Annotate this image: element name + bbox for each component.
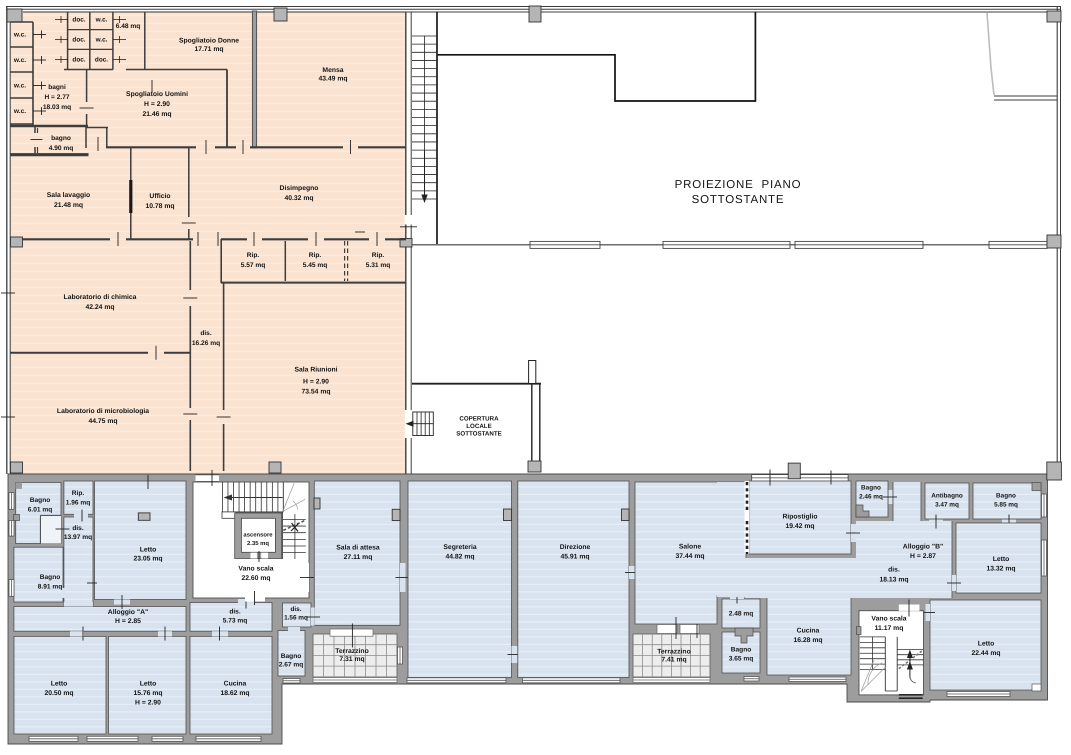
svg-text:H = 2.90: H = 2.90 — [303, 379, 329, 386]
svg-text:Cucina: Cucina — [797, 628, 820, 635]
svg-text:11.17 mq: 11.17 mq — [875, 625, 904, 632]
svg-text:7.31 mq: 7.31 mq — [339, 656, 364, 663]
svg-text:22.60 mq: 22.60 mq — [241, 575, 270, 582]
svg-text:dis.: dis. — [888, 567, 900, 574]
svg-text:7.41 mq: 7.41 mq — [661, 657, 686, 664]
svg-text:2.67 mq: 2.67 mq — [279, 662, 304, 669]
svg-text:H = 2.77: H = 2.77 — [44, 94, 69, 101]
svg-text:SOTTOSTANTE: SOTTOSTANTE — [692, 194, 785, 206]
svg-text:w.c.: w.c. — [13, 83, 26, 90]
svg-text:16.28 mq: 16.28 mq — [793, 637, 822, 644]
svg-text:Sala lavaggio: Sala lavaggio — [47, 192, 90, 199]
svg-text:Sala Riunioni: Sala Riunioni — [294, 367, 337, 374]
svg-text:42.24 mq: 42.24 mq — [85, 304, 114, 311]
svg-text:Bagno: Bagno — [996, 493, 1016, 500]
svg-text:27.11 mq: 27.11 mq — [344, 554, 373, 561]
svg-text:H = 2.85: H = 2.85 — [115, 618, 141, 625]
svg-text:Alloggio "B": Alloggio "B" — [903, 544, 943, 551]
svg-text:Laboratorio di microbiologia: Laboratorio di microbiologia — [57, 408, 149, 415]
svg-text:43.49 mq: 43.49 mq — [318, 76, 347, 83]
svg-text:COPERTURA: COPERTURA — [459, 416, 499, 423]
svg-text:19.42 mq: 19.42 mq — [785, 523, 814, 530]
svg-text:bagno: bagno — [51, 135, 71, 142]
svg-text:doc.: doc. — [72, 37, 85, 44]
svg-text:40.32 mq: 40.32 mq — [284, 195, 313, 202]
svg-text:13.97 mq: 13.97 mq — [64, 534, 92, 541]
svg-text:1.56 mq: 1.56 mq — [284, 615, 308, 622]
svg-text:H = 2.90: H = 2.90 — [144, 101, 170, 108]
svg-text:ascensore: ascensore — [243, 533, 273, 539]
svg-text:w.c.: w.c. — [13, 57, 26, 64]
svg-text:Ufficio: Ufficio — [149, 193, 170, 200]
svg-text:15.76 mq: 15.76 mq — [133, 690, 162, 697]
svg-text:18.62 mq: 18.62 mq — [220, 690, 249, 697]
svg-text:Laboratorio di chimica: Laboratorio di chimica — [64, 294, 137, 301]
svg-text:Segreteria: Segreteria — [443, 544, 476, 551]
svg-text:21.48 mq: 21.48 mq — [54, 202, 83, 209]
svg-text:Rip.: Rip. — [247, 252, 260, 259]
svg-text:3.65 mq: 3.65 mq — [729, 656, 754, 663]
svg-text:Mensa: Mensa — [322, 67, 343, 74]
svg-text:2.35 mq: 2.35 mq — [247, 540, 269, 547]
svg-text:w.c.: w.c. — [13, 32, 26, 39]
svg-text:8.91 mq: 8.91 mq — [38, 584, 63, 591]
svg-text:dis.: dis. — [290, 606, 301, 613]
svg-text:doc.: doc. — [95, 57, 108, 64]
svg-text:Bagno: Bagno — [40, 574, 61, 581]
svg-text:45.91 mq: 45.91 mq — [560, 554, 589, 561]
svg-text:4.90 mq: 4.90 mq — [49, 145, 74, 152]
svg-text:dis.: dis. — [229, 609, 241, 616]
svg-text:Spogliatoio Uomini: Spogliatoio Uomini — [126, 91, 188, 98]
svg-text:Spogliatoio Donne: Spogliatoio Donne — [179, 38, 239, 45]
svg-text:18.13 mq: 18.13 mq — [879, 577, 908, 584]
svg-text:LOCALE: LOCALE — [466, 423, 491, 430]
svg-text:6.01 mq: 6.01 mq — [28, 507, 53, 514]
svg-text:dis.: dis. — [72, 525, 84, 532]
svg-text:18.03 mq: 18.03 mq — [43, 104, 71, 111]
svg-text:Rip.: Rip. — [372, 252, 385, 259]
svg-text:22.44 mq: 22.44 mq — [971, 650, 1000, 657]
svg-text:Alloggio "A": Alloggio "A" — [108, 609, 148, 616]
svg-text:Bagno: Bagno — [861, 485, 881, 492]
svg-text:Cucina: Cucina — [224, 681, 247, 688]
svg-text:Letto: Letto — [140, 681, 157, 688]
svg-text:5.31 mq: 5.31 mq — [366, 262, 391, 269]
svg-text:Rip.: Rip. — [72, 490, 85, 497]
svg-text:5.45 mq: 5.45 mq — [303, 262, 328, 269]
svg-text:5.85 mq: 5.85 mq — [994, 502, 1018, 509]
svg-text:2.46 mq: 2.46 mq — [859, 494, 883, 501]
svg-text:6.48 mq: 6.48 mq — [116, 23, 141, 30]
svg-text:Vano scala: Vano scala — [871, 616, 906, 623]
svg-text:Direzione: Direzione — [560, 544, 591, 551]
svg-text:Terrazzino: Terrazzino — [657, 649, 691, 656]
svg-text:Letto: Letto — [978, 641, 995, 648]
svg-text:2.48 mq: 2.48 mq — [729, 611, 754, 618]
svg-text:Letto: Letto — [140, 547, 157, 554]
svg-text:13.32 mq: 13.32 mq — [986, 566, 1015, 573]
svg-text:Terrazzino: Terrazzino — [335, 648, 369, 655]
svg-text:3.47 mq: 3.47 mq — [935, 502, 959, 509]
svg-text:w.c.: w.c. — [13, 108, 26, 115]
svg-text:23.05 mq: 23.05 mq — [133, 556, 162, 563]
svg-text:1.96 mq: 1.96 mq — [66, 500, 91, 507]
svg-text:Bagno: Bagno — [731, 647, 752, 654]
svg-text:Letto: Letto — [51, 681, 68, 688]
svg-text:doc.: doc. — [72, 57, 85, 64]
svg-text:Rip.: Rip. — [309, 252, 322, 259]
svg-text:44.82 mq: 44.82 mq — [445, 554, 474, 561]
svg-text:5.73 mq: 5.73 mq — [223, 618, 248, 625]
svg-text:10.78 mq: 10.78 mq — [145, 203, 174, 210]
svg-text:21.46 mq: 21.46 mq — [142, 111, 171, 118]
svg-text:H = 2.90: H = 2.90 — [135, 700, 161, 707]
svg-text:bagni: bagni — [48, 84, 66, 91]
svg-text:Disimpegno: Disimpegno — [280, 185, 319, 192]
svg-text:w.c.: w.c. — [95, 17, 108, 24]
svg-text:dis.: dis. — [200, 330, 212, 337]
svg-text:17.71 mq: 17.71 mq — [194, 46, 223, 53]
svg-text:5.57 mq: 5.57 mq — [241, 262, 266, 269]
svg-text:Antibagno: Antibagno — [931, 493, 963, 500]
svg-text:doc.: doc. — [72, 17, 85, 24]
svg-text:20.50 mq: 20.50 mq — [44, 690, 73, 697]
svg-text:16.26 mq: 16.26 mq — [192, 340, 220, 347]
svg-text:Bagno: Bagno — [281, 653, 302, 660]
svg-text:Bagno: Bagno — [30, 497, 51, 504]
svg-text:73.54 mq: 73.54 mq — [301, 389, 330, 396]
svg-text:SOTTOSTANTE: SOTTOSTANTE — [456, 431, 502, 438]
svg-text:Vano scala: Vano scala — [238, 566, 273, 573]
svg-text:Salone: Salone — [679, 544, 702, 551]
svg-text:44.75 mq: 44.75 mq — [88, 418, 117, 425]
svg-text:H = 2.87: H = 2.87 — [910, 553, 936, 560]
svg-text:37.44 mq: 37.44 mq — [675, 553, 704, 560]
svg-text:Letto: Letto — [993, 556, 1010, 563]
svg-text:PROIEZIONE PIANO: PROIEZIONE PIANO — [675, 179, 802, 191]
svg-text:Ripostiglio: Ripostiglio — [782, 514, 817, 521]
svg-text:w.c.: w.c. — [95, 37, 108, 44]
svg-text:Sala di attesa: Sala di attesa — [336, 545, 380, 552]
